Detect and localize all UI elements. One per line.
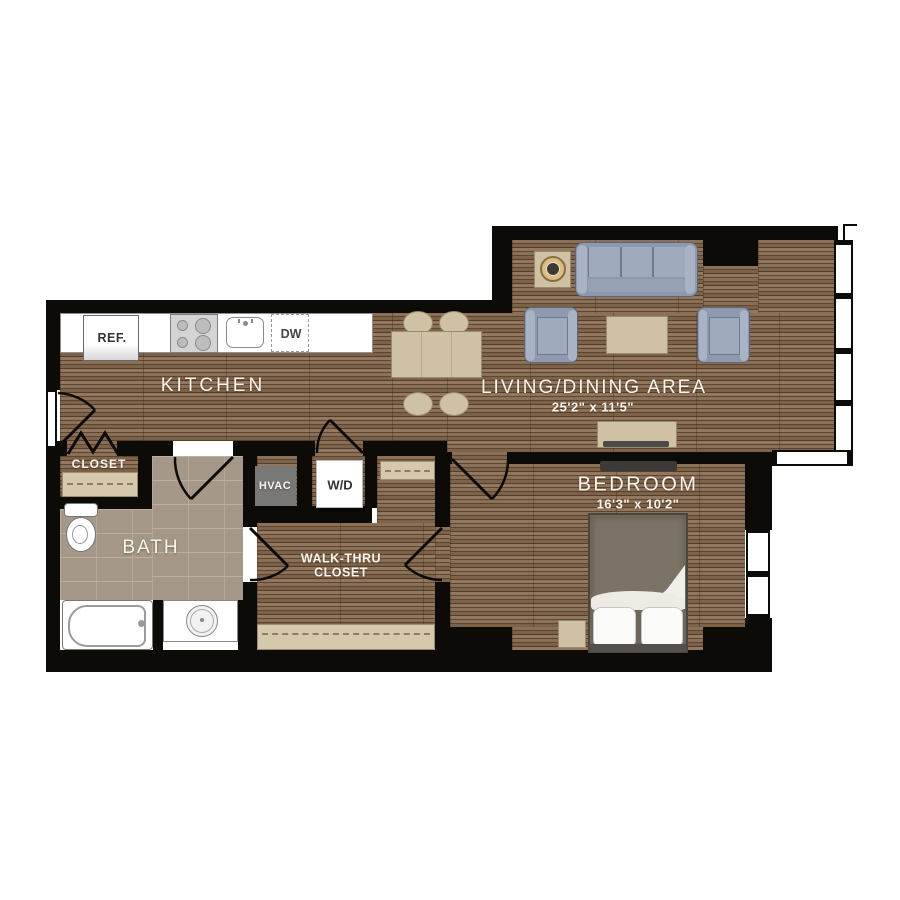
walkthru-east-gap-floor — [435, 527, 450, 582]
dining-chair — [439, 392, 469, 416]
entry-door-leaf — [46, 390, 57, 448]
armchair-arm — [699, 310, 707, 361]
entry-closet-label: CLOSET — [72, 457, 127, 471]
stove — [170, 314, 218, 353]
sofa-cushion-divider — [620, 247, 622, 277]
dishwasher: DW — [271, 314, 309, 352]
wall — [243, 506, 372, 523]
bath-door-threshold — [173, 443, 233, 456]
sofa — [575, 242, 698, 297]
walkthru-shelf-top — [380, 461, 435, 480]
bathtub — [62, 600, 153, 650]
nightstand — [558, 620, 586, 648]
living-floor-upper-right — [758, 240, 837, 313]
sofa-cushion-divider — [652, 247, 654, 277]
floor-plan: REF. DW HVAC W/D — [0, 0, 900, 900]
burner — [177, 337, 188, 348]
hvac-unit: HVAC — [255, 466, 296, 506]
walkthru-closet-label: WALK-THRU CLOSET — [301, 552, 381, 581]
wall — [46, 650, 772, 672]
sofa-arm — [685, 245, 695, 294]
coffee-table — [606, 316, 668, 354]
living-dining-label: LIVING/DINING AREA — [481, 377, 707, 399]
refrigerator: REF. — [83, 315, 139, 361]
wall — [443, 627, 512, 652]
sofa-arm — [577, 245, 587, 294]
bed — [588, 513, 688, 653]
balcony-tick-foot — [843, 224, 857, 226]
dishwasher-label: DW — [281, 327, 302, 341]
living-window-south — [772, 450, 853, 466]
toilet-tank — [64, 503, 98, 517]
vanity — [163, 600, 238, 642]
bathtub-drain — [138, 620, 145, 627]
balcony-tick — [843, 224, 845, 241]
hvac-label: HVAC — [259, 480, 291, 492]
wall — [365, 452, 377, 508]
side-table — [534, 251, 571, 288]
bedroom-window-east — [746, 528, 770, 620]
bedroom-tv — [600, 461, 677, 471]
toilet-bowl — [66, 517, 96, 552]
washer-dryer-label: W/D — [327, 478, 352, 493]
armchair-seat — [709, 317, 740, 355]
washer-dryer-unit: W/D — [316, 460, 363, 508]
wall — [703, 240, 758, 266]
entry-closet-shelf — [62, 472, 138, 497]
headboard — [590, 644, 686, 652]
burner — [195, 335, 211, 351]
wall — [243, 582, 257, 602]
bedroom-door-gap-floor — [450, 452, 507, 464]
burner — [177, 320, 188, 331]
armchair-right — [697, 307, 750, 363]
dining-table — [391, 331, 482, 378]
faucet — [243, 321, 248, 326]
kitchen-sink — [226, 317, 264, 348]
sofa-cushions — [588, 247, 687, 277]
wall — [46, 448, 60, 672]
bath-label: BATH — [122, 537, 179, 559]
faucet-handle — [251, 319, 253, 323]
bedroom-label: BEDROOM — [578, 474, 699, 497]
walkthru-closet-label-line2: CLOSET — [301, 566, 381, 580]
lamp-inner — [546, 262, 560, 276]
wall — [745, 618, 772, 652]
toilet-bowl-inner — [72, 525, 88, 544]
dining-chair — [403, 392, 433, 416]
wall — [238, 600, 257, 652]
wall — [297, 452, 312, 508]
bath-floor — [152, 456, 243, 600]
armchair-arm — [740, 310, 748, 361]
bathtub-basin — [68, 605, 146, 647]
wall — [46, 300, 497, 313]
wall — [138, 452, 152, 502]
walkthru-closet-label-line1: WALK-THRU — [301, 552, 381, 566]
armchair-seat — [537, 317, 568, 355]
wall — [435, 456, 450, 527]
console-tv-bar — [603, 441, 669, 447]
refrigerator-label: REF. — [97, 331, 126, 345]
armchair-arm — [568, 310, 577, 361]
wall — [46, 300, 60, 390]
faucet-handle — [238, 319, 240, 323]
wall — [153, 600, 163, 650]
wall — [492, 226, 838, 240]
burner — [195, 318, 211, 334]
living-dining-dimensions: 25'2" x 11'5" — [552, 400, 634, 415]
living-floor-notch — [703, 266, 758, 313]
living-window-east — [834, 240, 853, 456]
armchair-arm — [526, 310, 535, 361]
pillow — [593, 607, 636, 648]
walkthru-shelf-bottom — [257, 624, 435, 650]
media-console — [597, 421, 677, 448]
vanity-faucet — [200, 618, 204, 622]
wall — [745, 464, 772, 530]
sofa-seat — [588, 279, 685, 292]
bedroom-dimensions: 16'3" x 10'2" — [597, 497, 680, 512]
kitchen-label: KITCHEN — [161, 375, 265, 397]
pillow — [641, 607, 683, 648]
armchair-left — [524, 307, 578, 363]
walkthru-west-threshold — [243, 527, 257, 582]
